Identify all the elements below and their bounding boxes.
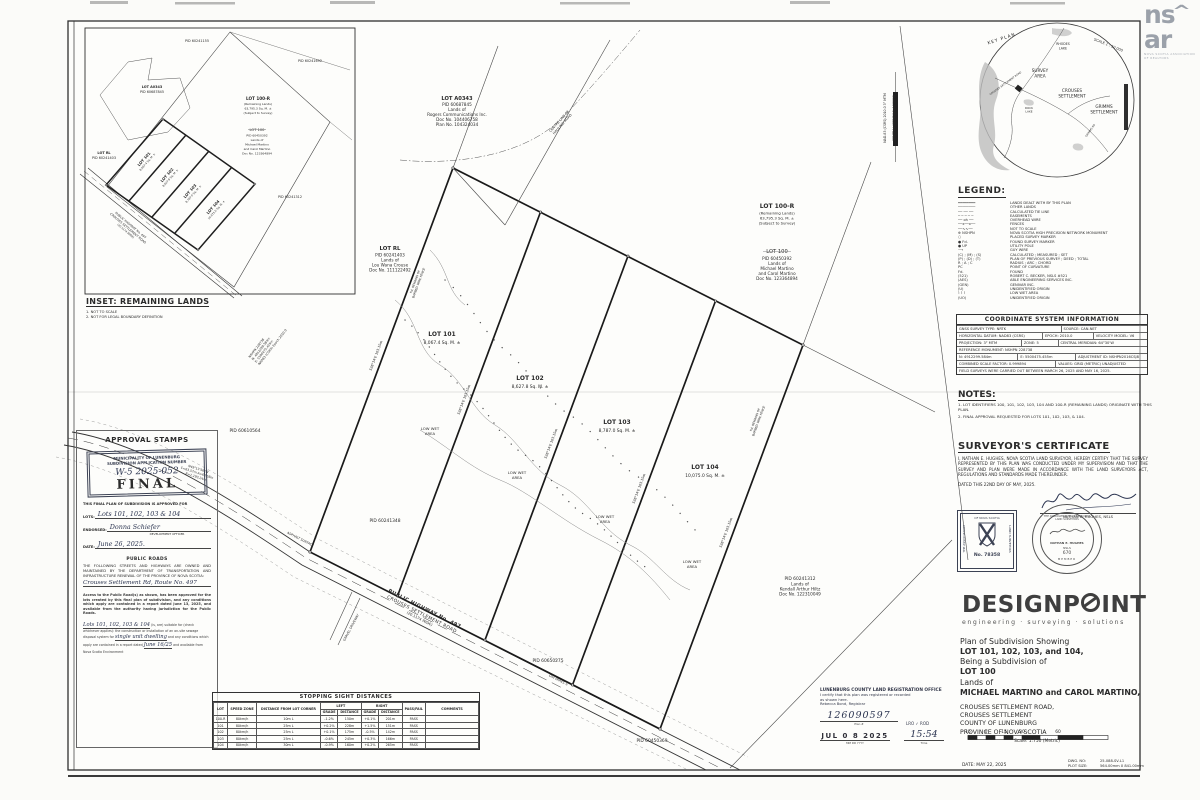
survey-area-label: SURVEY — [1032, 68, 1049, 73]
registered-plan-number: 126090597 — [820, 710, 898, 722]
legend-symbol: (UO) — [958, 296, 1010, 300]
svg-text:8,067.4 Sq. M. ±: 8,067.4 Sq. M. ± — [424, 340, 461, 346]
title-block: Plan of Subdivision Showing LOT 101, 102… — [960, 637, 1170, 737]
svg-text:(Subject to Survey): (Subject to Survey) — [759, 221, 796, 226]
svg-text:PID 60450392: PID 60450392 — [246, 134, 267, 138]
svg-text:Lands of: Lands of — [251, 138, 265, 142]
inset-caption: INSET: REMAINING LANDS 1. NOT TO SCALE 2… — [86, 297, 209, 321]
ssd-row: 100-R 80km/h 10m L -1.2% 150m +0.1% 201m… — [214, 716, 479, 723]
plot-size: 564.00mm X 841.00mm — [1100, 764, 1144, 769]
grimms-settlement-label: GRIMMS — [1095, 104, 1113, 109]
footer-date: DATE: MAY 22, 2025 — [962, 763, 1006, 768]
seal-signature — [1047, 528, 1087, 536]
inset-pid-60241312: PID 60241312 — [278, 195, 302, 199]
footer-dwg-info: DWG. NO:25-088-SV-L1 PLOT SIZE:564.00mm … — [1068, 759, 1144, 770]
inset-lot-100-struck: LOT 100 — [250, 128, 266, 132]
designpoint-tagline: engineering · surveying · solutions — [962, 619, 1172, 626]
svg-text:8,787.0 Sq. M. ±: 8,787.0 Sq. M. ± — [599, 428, 636, 434]
coordinate-system-table: COORDINATE SYSTEM INFORMATION GNSS SURVE… — [956, 314, 1148, 375]
survey-plan-sheet: KEY PLAN SCALE 1 : 50 000 RHODES LAKE SU… — [0, 0, 1200, 800]
lot-100r-label: LOT 100-R — [760, 203, 795, 210]
ssd-row: 101 80km/h 25m L +0.2% 228m +1.5% 151m P… — [214, 722, 479, 729]
svg-text:AREA: AREA — [425, 431, 436, 436]
lot-102-label: LOT 102 — [516, 375, 543, 382]
svg-text:AREA: AREA — [512, 475, 523, 480]
designpoint-logo: DESIGNPINT engineering · surveying · sol… — [962, 593, 1172, 626]
inset-lot-a0343: LOT A0343 — [142, 85, 163, 89]
approval-title: APPROVAL STAMPS — [83, 436, 211, 444]
ssd-row: 102 80km/h 25m L +0.1% 175m -0.5% 142m P… — [214, 729, 479, 736]
scale-caption: Scale: 1:750 (Metric) — [962, 726, 1142, 744]
csi-title: COORDINATE SYSTEM INFORMATION — [957, 315, 1147, 325]
inset-pid-60241155: PID 60241155 — [185, 39, 209, 43]
ssd-rows: 100-R 80km/h 10m L -1.2% 150m +0.1% 201m… — [214, 716, 479, 749]
svg-text:Doc No. 123364894: Doc No. 123364894 — [756, 276, 798, 281]
lro-rod-checkbox: LRO ✓ ROD — [906, 721, 929, 726]
stopping-sight-distances-table: STOPPING SIGHT DISTANCES LOT SPEED ZONE … — [212, 692, 480, 750]
rhodes-lake-label: RHODES — [1056, 42, 1070, 46]
svg-text:Michael Martino: Michael Martino — [245, 143, 269, 147]
svg-text:SETTLEMENT: SETTLEMENT — [1090, 110, 1118, 115]
svg-text:8,627.8 Sq. M. ±: 8,627.8 Sq. M. ± — [512, 384, 549, 390]
svg-text:AREA: AREA — [600, 519, 611, 524]
designpoint-globe-icon — [1081, 593, 1100, 612]
municipality-stamp: MUNICIPALITY OF LUNENBURG SUBDIVISION AP… — [86, 448, 207, 497]
endorsed-by: Donna Schiefer — [107, 523, 211, 532]
registration-date: JUL 0 8 2025 — [820, 732, 890, 741]
svg-text:Plan No. 104324034: Plan No. 104324034 — [436, 122, 479, 127]
legend-item: (UO) UNIDENTIFIED ORIGIN — [958, 296, 1144, 300]
pid-60241348-label: PID 60241348 — [369, 518, 400, 524]
legend-title: LEGEND: — [958, 186, 1006, 198]
registration-time: 15:54 — [904, 729, 944, 741]
approval-date: June 26, 2025. — [95, 540, 211, 549]
ssd-row: 103 80km/h 25m L -0.6% 245m +0.3% 166m P… — [214, 735, 479, 742]
approval-stamps-panel: APPROVAL STAMPS MUNICIPALITY OF LUNENBUR… — [76, 430, 218, 748]
final-stamp: FINAL — [91, 476, 203, 494]
legend-label: UNIDENTIFIED ORIGIN — [1010, 296, 1144, 300]
lot-101-label: LOT 101 — [428, 331, 455, 338]
lot-100-struck-label: LOT 100 — [766, 249, 788, 255]
svg-text:63,795.3 Sq. M. ±: 63,795.3 Sq. M. ± — [244, 107, 272, 111]
svg-text:Doc No. 111122492: Doc No. 111122492 — [369, 268, 411, 273]
lot-103-label: LOT 103 — [603, 419, 630, 426]
certificate-title: SURVEYOR'S CERTIFICATE — [958, 441, 1110, 453]
public-road-name: Crouses Settlement Rd, Route No. 497 — [83, 580, 211, 587]
legend-items: ━━━━━━━━ LANDS DEALT WITH BY THIS PLAN ─… — [958, 201, 1144, 300]
inset-pid-60241692: PID 60241692 — [298, 59, 322, 63]
sewage-approval-note: Lots 101, 102, 103 & 104 (is, are) suita… — [83, 622, 211, 655]
nsar-logo: ns^ar NOVA SCOTIA ASSOCIATION OF REALTOR… — [1144, 2, 1200, 60]
keyplan-bar — [1124, 84, 1128, 130]
approved-lots: Lots 101, 102, 103 & 104 — [95, 510, 211, 519]
svg-text:PID 60241403: PID 60241403 — [92, 156, 116, 160]
svg-text:LAKE: LAKE — [1025, 110, 1032, 114]
lot-104-label: LOT 104 — [691, 464, 718, 471]
nsls-square-stamp: OF NOVA SCOTIA THE ASSOCIATION LAND SURV… — [957, 510, 1017, 572]
notes-title: NOTES: — [958, 390, 996, 401]
svg-text:AREA: AREA — [1034, 74, 1045, 79]
note-2: 2. FINAL APPROVAL REQUESTED FOR LOTS 101… — [958, 415, 1158, 420]
notes-panel: NOTES: 1. LOT IDENTIFIERS 100, 101, 102,… — [958, 382, 1158, 422]
svg-text:NAD-83 (CSRS) 2010.0 3° MTM: NAD-83 (CSRS) 2010.0 3° MTM — [883, 93, 887, 143]
svg-text:Doc No. 122310049: Doc No. 122310049 — [779, 592, 821, 597]
inset-lot-100r: LOT 100-R — [246, 96, 271, 101]
crouses-settlement-label: CROUSES — [1062, 88, 1082, 93]
svg-text:10,075.0 Sq. M. ±: 10,075.0 Sq. M. ± — [685, 473, 725, 479]
surveyor-seal: THE ASSOCIATION OF NOVA SCOTIA LAND SURV… — [1032, 504, 1102, 574]
pid-60450369-label: PID 60450369 — [636, 738, 667, 744]
certificate-body: I, NATHAN E. HUGHES, NOVA SCOTIA LAND SU… — [958, 456, 1148, 477]
nsar-roof-icon: ^ — [1172, 4, 1189, 19]
pid-60610564-label: PID 60610564 — [229, 428, 260, 434]
ssd-row: 104 80km/h 30m L -0.9% 160m +0.2% 265m P… — [214, 742, 479, 749]
svg-text:and Carol Martino: and Carol Martino — [244, 147, 271, 151]
inset-lot-rl: LOT RL — [97, 151, 111, 155]
scan-artifacts — [90, 1, 1065, 5]
pid-60650275-label: PID 60650275 — [532, 658, 563, 664]
svg-text:Doc No. 123364894: Doc No. 123364894 — [242, 152, 272, 156]
svg-text:(Subject to Survey): (Subject to Survey) — [244, 111, 273, 115]
lot-rl-label: LOT RL — [380, 246, 402, 252]
svg-text:AREA: AREA — [687, 564, 698, 569]
ssd-title: STOPPING SIGHT DISTANCES — [213, 693, 479, 702]
svg-text:LAKE: LAKE — [1059, 47, 1067, 51]
svg-text:CENTRAL MERIDIAN 64°30'W: CENTRAL MERIDIAN 64°30'W — [892, 94, 896, 141]
nsls-crest-icon — [976, 521, 998, 547]
svg-text:SETTLEMENT: SETTLEMENT — [1058, 94, 1086, 99]
registration-stamp: LUNENBURG COUNTY LAND REGISTRATION OFFIC… — [820, 688, 968, 745]
legend-panel: LEGEND: ━━━━━━━━ LANDS DEALT WITH BY THI… — [958, 178, 1144, 300]
svg-text:PID 60687845: PID 60687845 — [140, 90, 164, 94]
note-1: 1. LOT IDENTIFIERS 100, 101, 102, 103, 1… — [958, 403, 1158, 413]
svg-text:(Remaining Lands): (Remaining Lands) — [244, 102, 272, 106]
